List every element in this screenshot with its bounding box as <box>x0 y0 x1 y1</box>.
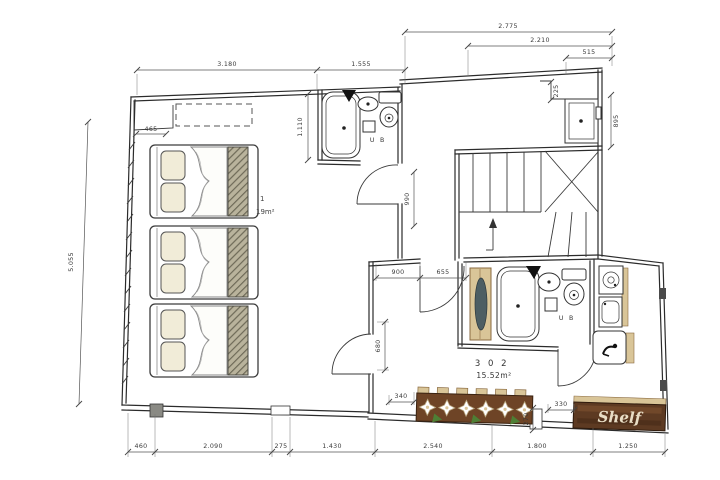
dim-900: 900 <box>392 269 405 276</box>
dim-top-515: 515 <box>583 49 596 56</box>
direction-arrow-icon <box>486 218 497 250</box>
door-301-302 <box>332 334 371 374</box>
door-301-entry <box>357 165 398 204</box>
bath-counter <box>545 298 557 311</box>
shelf-sign: Shelf <box>573 396 666 431</box>
room-301-label-fragment: 1 <box>260 195 264 203</box>
dim-top-2775: 2.775 <box>498 23 518 30</box>
shelf-sign-text: Shelf <box>597 408 644 427</box>
dim-1110: 1.110 <box>297 117 304 137</box>
room-302-label: 3 0 2 <box>475 359 509 369</box>
corner-fixture <box>565 99 601 143</box>
bed-2 <box>150 226 258 299</box>
room-302-area: 15.52m² <box>476 371 511 380</box>
dim-990: 990 <box>404 193 411 206</box>
dim-330: 330 <box>555 401 568 408</box>
dim-bottom-1430: 1.430 <box>322 443 342 450</box>
dim-895: 895 <box>613 115 620 128</box>
dim-top-3180: 3.180 <box>217 61 237 68</box>
dim-655: 655 <box>437 269 450 276</box>
dim-left-5055: 5.055 <box>68 252 75 272</box>
toilet-tank-icon <box>379 92 401 103</box>
dim-340: 340 <box>395 393 408 400</box>
window-mark <box>660 380 667 391</box>
unit-bath-301-label: U B <box>370 137 386 144</box>
wall-pier <box>271 406 290 415</box>
dim-bottom-2090: 2.090 <box>203 443 223 450</box>
bed-1 <box>150 145 258 218</box>
bath-counter <box>363 121 375 132</box>
stairs <box>459 151 598 257</box>
wood-cabinet <box>470 268 491 340</box>
wall-pier <box>150 404 163 417</box>
dim-bottom-1250: 1.250 <box>618 443 638 450</box>
dim-bottom-1800: 1.800 <box>527 443 547 450</box>
floor-plan-page: 1 19m² U B <box>0 0 720 480</box>
unit-bath-302: U B <box>497 266 586 341</box>
planter <box>416 387 533 425</box>
dim-bottom-275: 275 <box>275 443 288 450</box>
bed-3 <box>150 304 258 377</box>
bathtub-icon <box>322 92 360 158</box>
dim-top-1555: 1.555 <box>351 61 371 68</box>
dim-270: 270 <box>523 413 530 426</box>
closet-dashed <box>176 104 252 126</box>
floor-plan-svg: 1 19m² U B <box>0 0 720 480</box>
kitchen-stove-icon <box>599 266 623 294</box>
bathtub-icon <box>497 267 539 341</box>
unit-bath-302-label: U B <box>559 315 575 322</box>
window-mark <box>659 288 666 299</box>
door-302-bath <box>558 349 596 386</box>
room-301-area-fragment: 19m² <box>256 208 275 216</box>
kitchen-sink-icon <box>599 297 622 327</box>
room-301: 1 19m² <box>150 104 275 377</box>
dim-top-2210: 2.210 <box>530 37 550 44</box>
unit-bath-301: U B <box>322 90 401 158</box>
dim-465: 465 <box>145 126 158 133</box>
desk <box>593 331 634 364</box>
dim-680: 680 <box>375 340 382 353</box>
kitchen <box>599 266 628 327</box>
room-302: 3 0 2 15.52m² U B <box>416 266 666 431</box>
dim-bottom-2540: 2.540 <box>423 443 443 450</box>
dim-bottom-460: 460 <box>135 443 148 450</box>
toilet-tank-icon <box>562 269 586 280</box>
dim-225: 225 <box>553 85 560 98</box>
